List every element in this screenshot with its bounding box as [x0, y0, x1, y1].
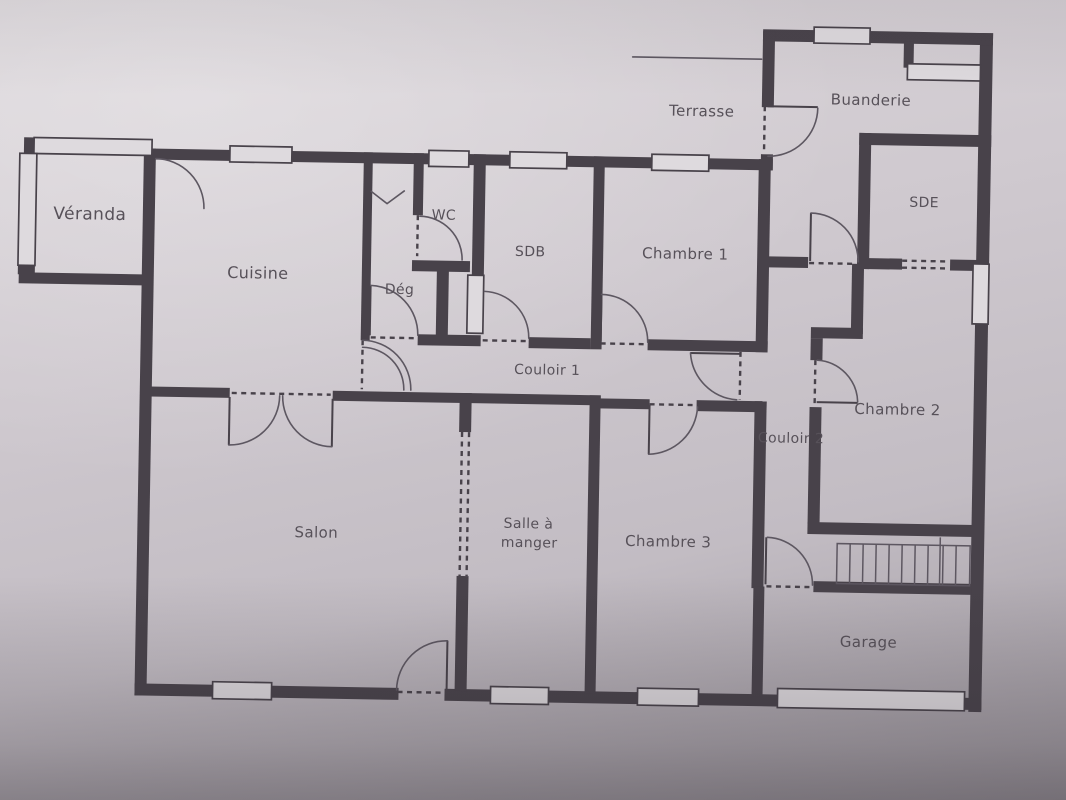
floor-plan-drawing: Véranda Cuisine WC Dég SDB Chambre 1 Ter…	[0, 0, 1066, 800]
closet-chevron-mark	[371, 190, 404, 204]
opening-salon-salle-a-manger	[460, 432, 470, 576]
details	[365, 52, 979, 585]
photographed-floor-plan: Véranda Cuisine WC Dég SDB Chambre 1 Ter…	[0, 0, 1066, 800]
room-label-couloir1: Couloir 1	[514, 362, 581, 379]
garage-door-opening	[777, 689, 964, 711]
buanderie-corner-unit	[907, 64, 980, 81]
window-veranda-left	[18, 153, 37, 265]
window-salon-bottom	[212, 682, 271, 700]
door-veranda-cuisine	[153, 157, 205, 209]
window-veranda-top	[34, 137, 152, 155]
room-label-salle-a-manger-line2: manger	[501, 535, 558, 552]
window-chambre2-right	[972, 264, 989, 324]
door-sdb	[467, 275, 530, 341]
door-chambre2	[815, 360, 859, 406]
room-label-degagement: Dég	[385, 282, 415, 299]
window-sdb-top	[510, 152, 567, 169]
window-salle-a-manger-bottom	[490, 687, 548, 705]
room-label-wc: WC	[432, 207, 457, 223]
room-label-chambre2: Chambre 2	[854, 400, 941, 420]
door-cuisine-couloir1	[362, 340, 412, 390]
room-label-couloir2: Couloir 2	[758, 430, 825, 447]
door-couloir1-couloir2	[690, 351, 741, 400]
window-chambre3-bottom	[637, 688, 698, 706]
room-label-sdb: SDB	[515, 244, 546, 261]
window-buanderie-top	[814, 27, 870, 44]
door-couloir2-garage	[765, 537, 813, 587]
room-label-salle-a-manger-line1: Salle à	[503, 516, 553, 533]
windows	[10, 13, 993, 712]
door-terrasse-buanderie	[764, 106, 818, 157]
room-label-chambre1: Chambre 1	[642, 244, 729, 264]
window-chambre1-top	[652, 154, 709, 171]
door-sde	[902, 261, 949, 269]
room-label-buanderie: Buanderie	[831, 90, 912, 109]
room-label-cuisine: Cuisine	[227, 263, 289, 283]
exterior-walls	[10, 16, 993, 712]
room-label-chambre3: Chambre 3	[625, 532, 712, 552]
room-label-terrasse: Terrasse	[668, 102, 734, 121]
room-label-veranda: Véranda	[53, 204, 126, 225]
window-wc-top	[429, 150, 469, 167]
door-chambre3	[649, 404, 698, 455]
door-salon-exterior	[397, 640, 448, 693]
room-label-garage: Garage	[840, 633, 898, 652]
room-label-sde: SDE	[909, 195, 939, 212]
staircase	[836, 536, 970, 586]
room-label-salon: Salon	[294, 523, 338, 542]
door-entry-couloir2	[809, 213, 859, 264]
double-door-salon	[229, 393, 333, 447]
window-cuisine-top	[230, 146, 292, 163]
terrasse-boundary-line	[633, 57, 762, 59]
door-chambre1	[601, 294, 649, 344]
